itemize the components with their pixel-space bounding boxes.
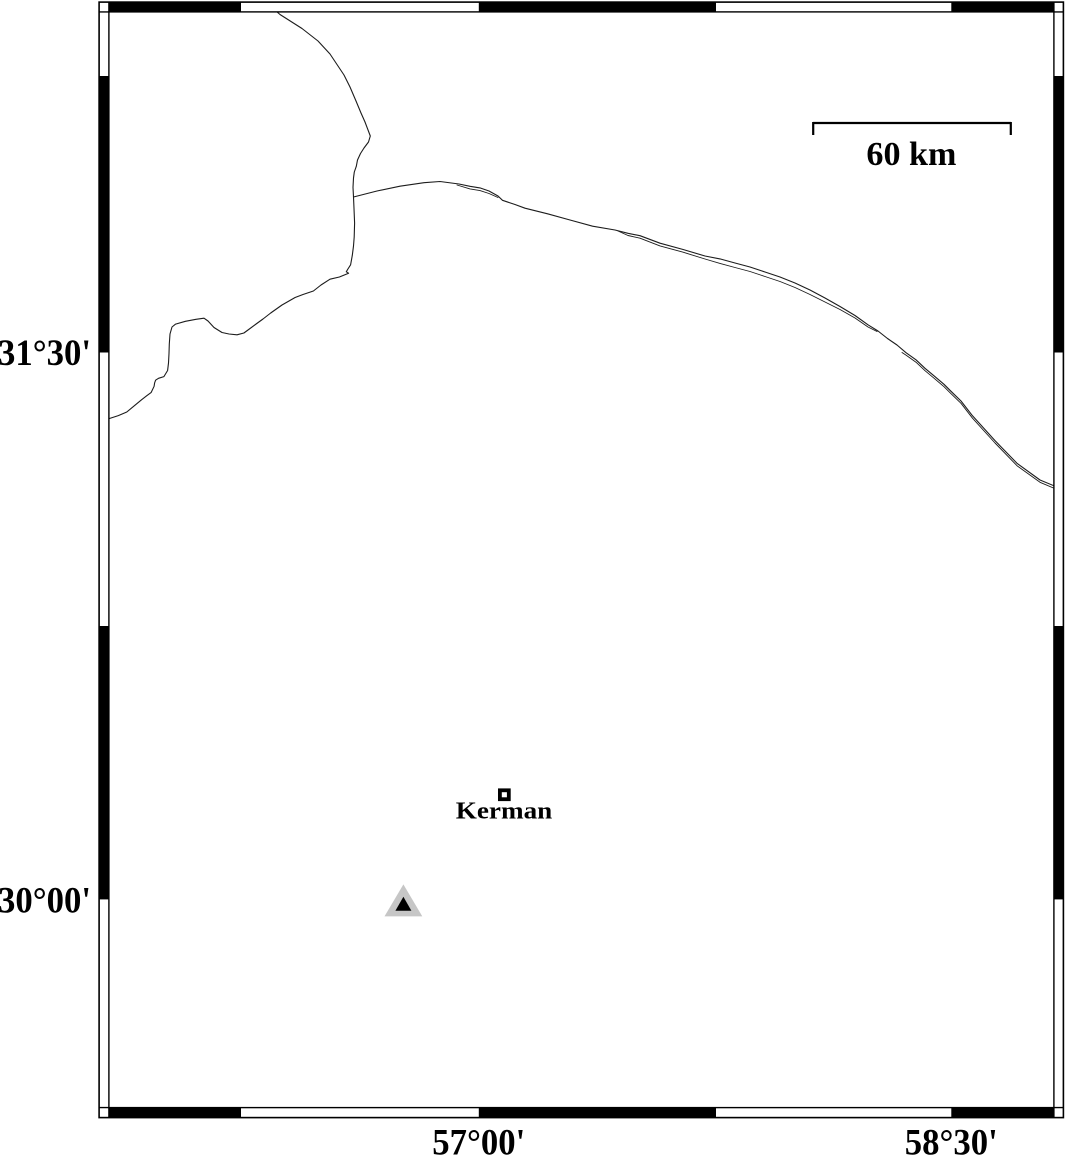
svg-text:58°30': 58°30' bbox=[905, 1123, 998, 1156]
svg-text:30°00': 30°00' bbox=[0, 881, 91, 922]
svg-text:60 km: 60 km bbox=[866, 136, 956, 173]
svg-text:Kerman: Kerman bbox=[456, 799, 553, 825]
svg-text:31°30': 31°30' bbox=[0, 333, 91, 374]
svg-text:57°00': 57°00' bbox=[432, 1123, 525, 1156]
